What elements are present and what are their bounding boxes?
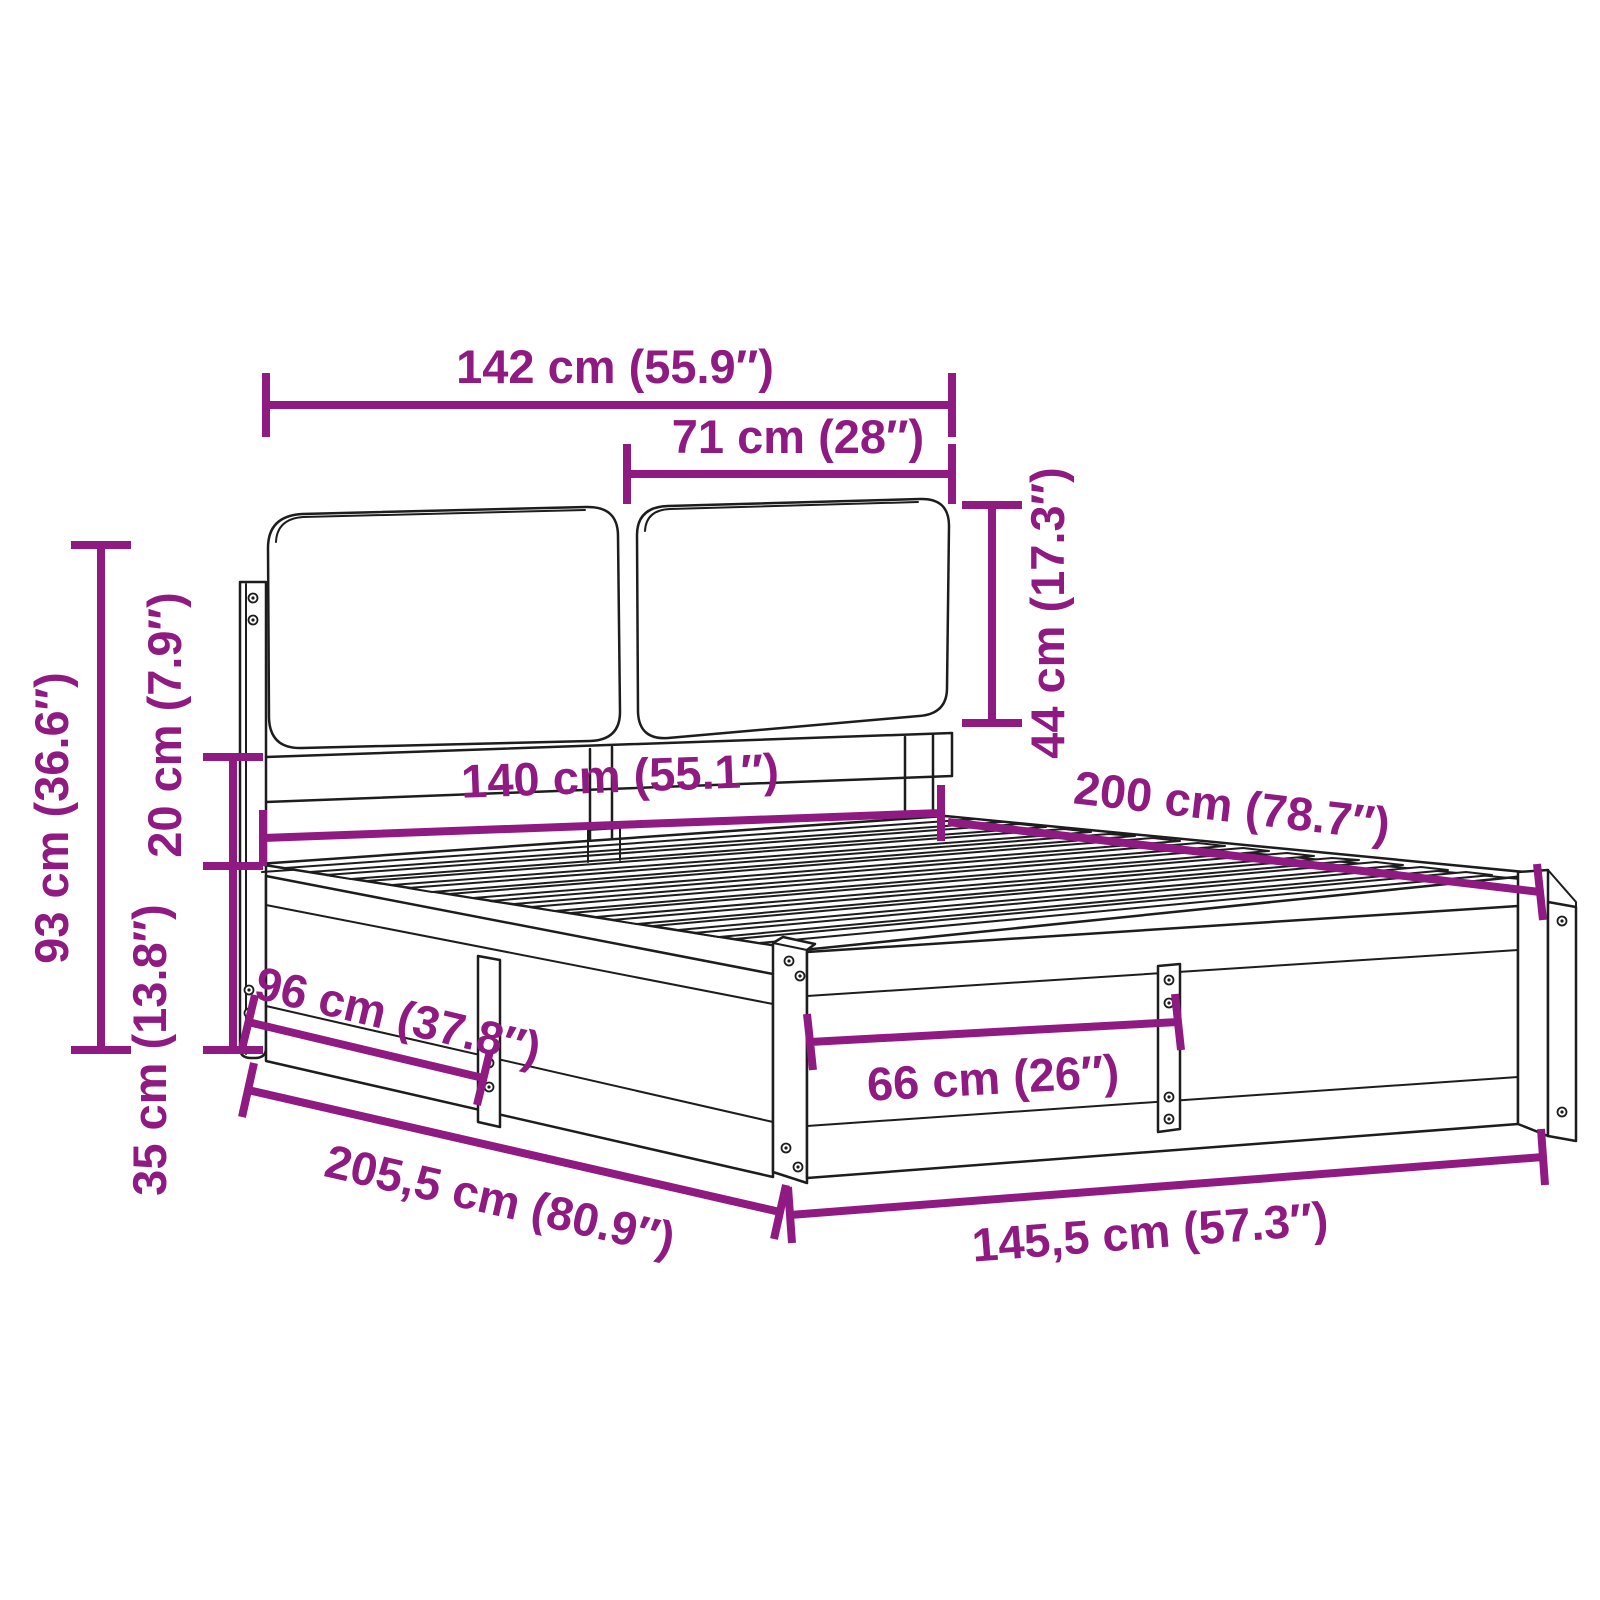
dimension-label: 205,5 cm (80.9″) — [320, 1134, 680, 1265]
screw-detail — [249, 616, 258, 625]
foot-right-post-outer — [1548, 902, 1576, 1141]
foot-right-post-bevel — [1548, 870, 1576, 907]
screw-detail — [249, 594, 258, 603]
dimension-diagram-canvas: 142 cm (55.9″) 71 cm (28″) 44 cm (17.3″)… — [0, 0, 1600, 1600]
dimension-label: 20 cm (7.9″) — [138, 592, 191, 857]
foot-right-post — [1518, 870, 1576, 1141]
screw-detail — [796, 972, 805, 981]
dimension-label: 93 cm (36.6″) — [25, 672, 78, 964]
dimension-headboard-cushion-width: 71 cm (28″) — [627, 410, 952, 504]
screw-detail — [1558, 917, 1567, 926]
dimension-line — [962, 505, 1022, 723]
dimension-label: 44 cm (17.3″) — [1021, 467, 1074, 759]
dimension-label: 140 cm (55.1″) — [460, 743, 779, 808]
screw-detail — [245, 986, 254, 995]
screw-detail — [785, 957, 794, 966]
dimension-label: 145,5 cm (57.3″) — [970, 1191, 1330, 1271]
headboard-cushion-left — [268, 507, 620, 748]
dimension-line — [71, 545, 131, 1050]
dimension-headboard-height: 93 cm (36.6″) — [25, 545, 131, 1050]
screw-detail — [782, 1144, 791, 1153]
screw-detail — [1165, 1115, 1174, 1124]
foot-panel-divider — [1158, 964, 1180, 1132]
headboard-cushion-right — [637, 499, 949, 738]
dimension-label: 71 cm (28″) — [672, 410, 924, 463]
dimension-label: 35 cm (13.8″) — [123, 904, 176, 1196]
dimension-label: 142 cm (55.9″) — [456, 340, 774, 393]
screw-detail — [1165, 1093, 1174, 1102]
screw-detail — [1165, 976, 1174, 985]
screw-detail — [1558, 1108, 1567, 1117]
foot-panel — [807, 906, 1518, 1178]
bed-dimension-diagram: 142 cm (55.9″) 71 cm (28″) 44 cm (17.3″)… — [0, 0, 1600, 1600]
screw-detail — [794, 1163, 803, 1172]
dimension-headboard-cushion-height: 44 cm (17.3″) — [962, 467, 1074, 759]
